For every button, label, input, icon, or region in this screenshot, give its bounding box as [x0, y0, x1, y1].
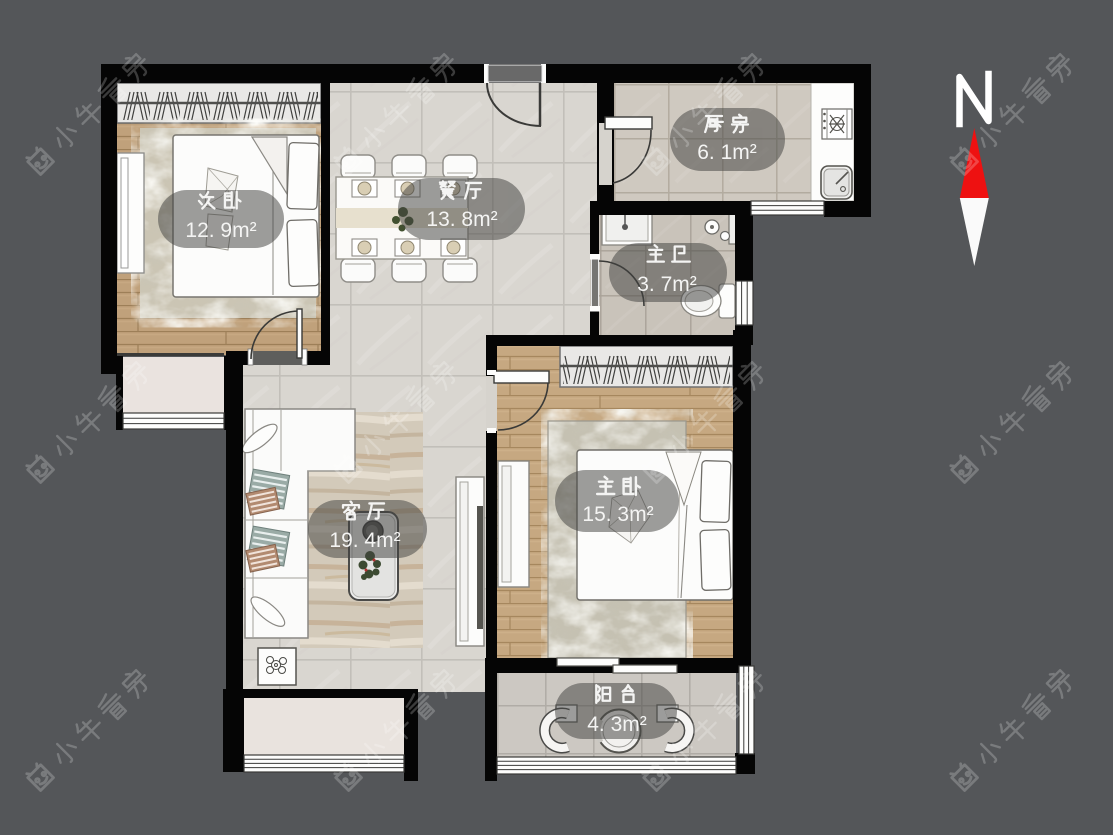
svg-text:3. 7m²: 3. 7m²: [637, 273, 697, 296]
svg-text:13. 8m²: 13. 8m²: [426, 208, 497, 231]
svg-text:15. 3m²: 15. 3m²: [582, 503, 653, 526]
svg-text:19. 4m²: 19. 4m²: [329, 529, 400, 552]
svg-text:4. 3m²: 4. 3m²: [587, 713, 647, 736]
svg-text:6. 1m²: 6. 1m²: [697, 141, 757, 164]
svg-text:12. 9m²: 12. 9m²: [185, 219, 256, 242]
